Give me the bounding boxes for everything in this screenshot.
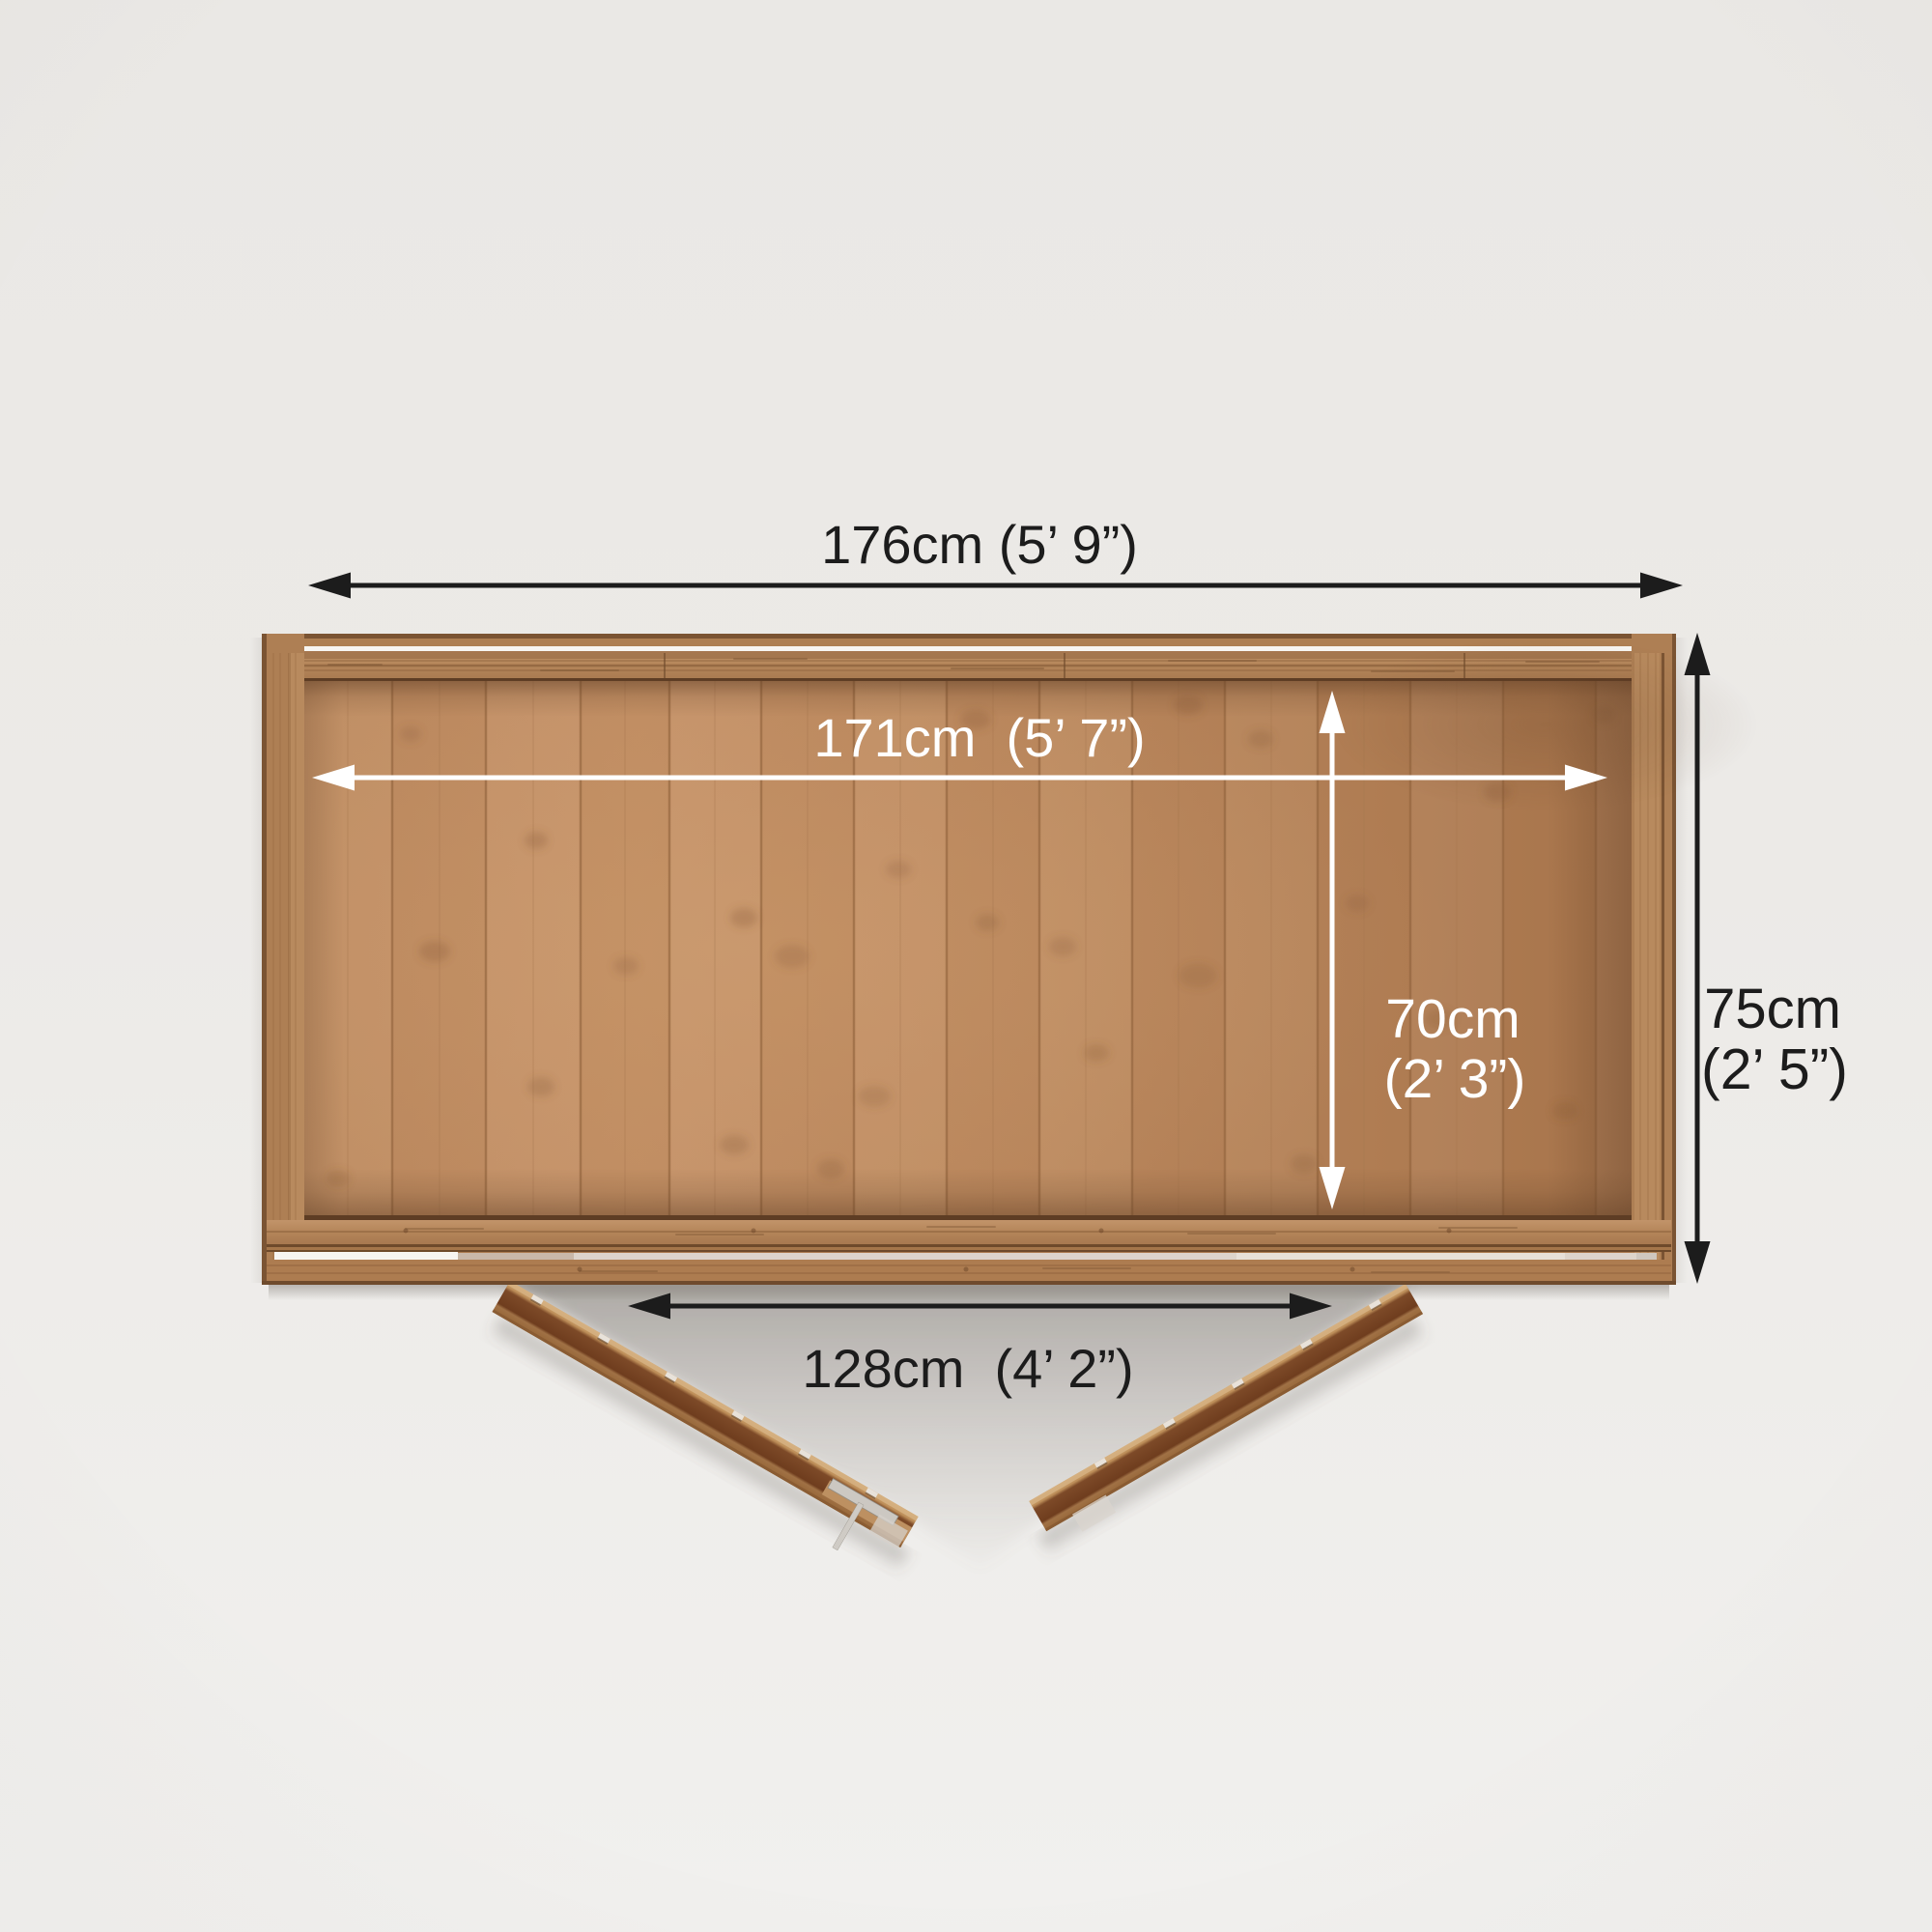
svg-text:176cm (5’ 9”): 176cm (5’ 9”): [821, 514, 1138, 575]
svg-text:(2’ 3”): (2’ 3”): [1384, 1048, 1526, 1110]
svg-text:75cm: 75cm: [1704, 978, 1841, 1040]
svg-text:70cm: 70cm: [1385, 988, 1520, 1050]
svg-text:(2’ 5”): (2’ 5”): [1701, 1037, 1848, 1101]
svg-text:171cm (5’ 7”): 171cm (5’ 7”): [813, 707, 1145, 768]
svg-text:128cm (4’ 2”): 128cm (4’ 2”): [802, 1338, 1133, 1399]
